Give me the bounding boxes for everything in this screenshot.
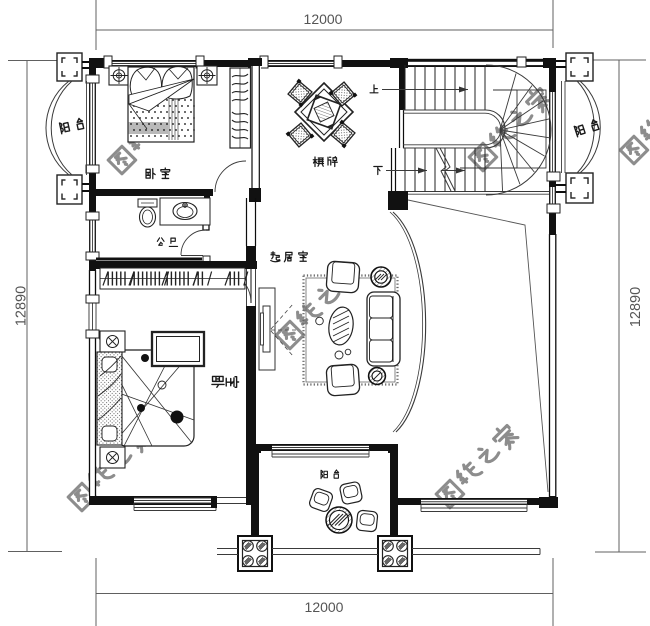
svg-text:12890: 12890: [628, 287, 644, 327]
svg-text:12000: 12000: [305, 599, 344, 615]
svg-text:12000: 12000: [304, 11, 343, 27]
svg-text:12890: 12890: [14, 286, 30, 326]
